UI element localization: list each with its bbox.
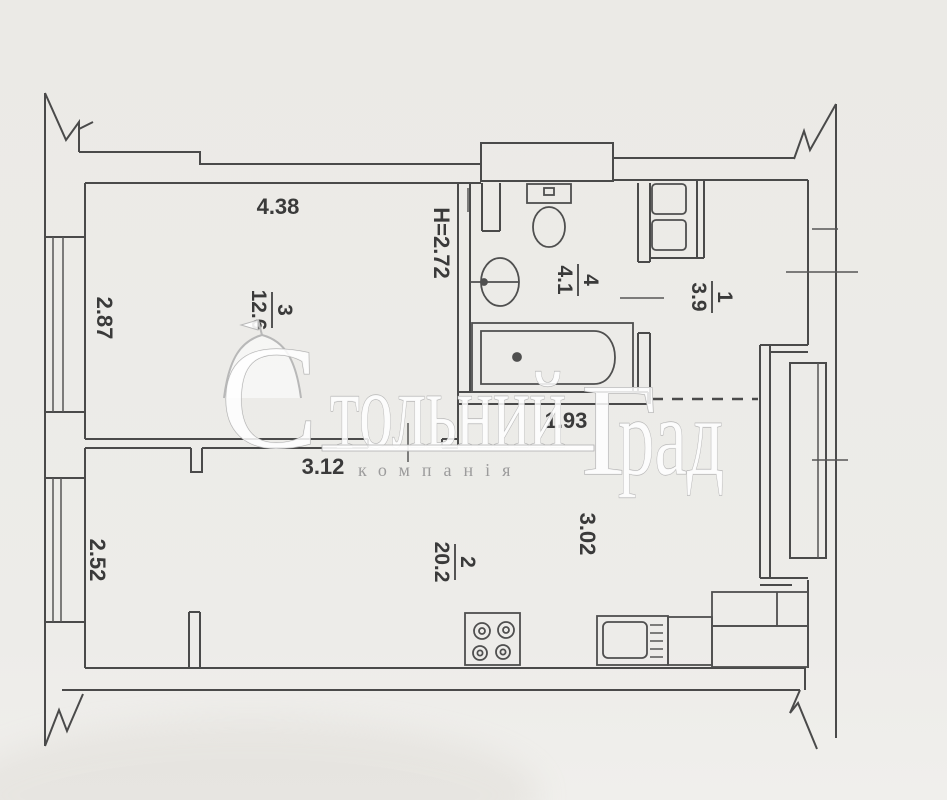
floor-plan-scan: 4.38 3.12 1.93 2.87 Н=2.72 2.52 3.02 3 1…: [0, 0, 947, 800]
watermark-word-2: рад: [618, 376, 724, 498]
dim-room2-right-depth: 3.02: [575, 513, 600, 556]
room-2-number: 2: [456, 556, 479, 568]
room-1-area: 3.9: [687, 282, 710, 311]
room-3-number: 3: [273, 304, 296, 316]
watermark-initial-1: С: [220, 316, 319, 480]
watermark-underline: [322, 445, 594, 451]
room-2-area: 20.2: [430, 542, 453, 583]
dim-room3-depth: 2.87: [92, 297, 117, 340]
floor-plan-svg: 4.38 3.12 1.93 2.87 Н=2.72 2.52 3.02 3 1…: [0, 0, 947, 800]
room-4-number: 4: [579, 274, 602, 286]
room-1-number: 1: [713, 291, 736, 303]
dim-top-width: 4.38: [257, 194, 300, 219]
room-4-area: 4.1: [553, 265, 576, 295]
dim-ceiling-height: Н=2.72: [429, 207, 454, 279]
watermark-subtitle: компанія: [358, 460, 522, 480]
watermark-word-1: тольний: [330, 349, 566, 471]
dim-room2-depth-left: 2.52: [85, 539, 110, 582]
